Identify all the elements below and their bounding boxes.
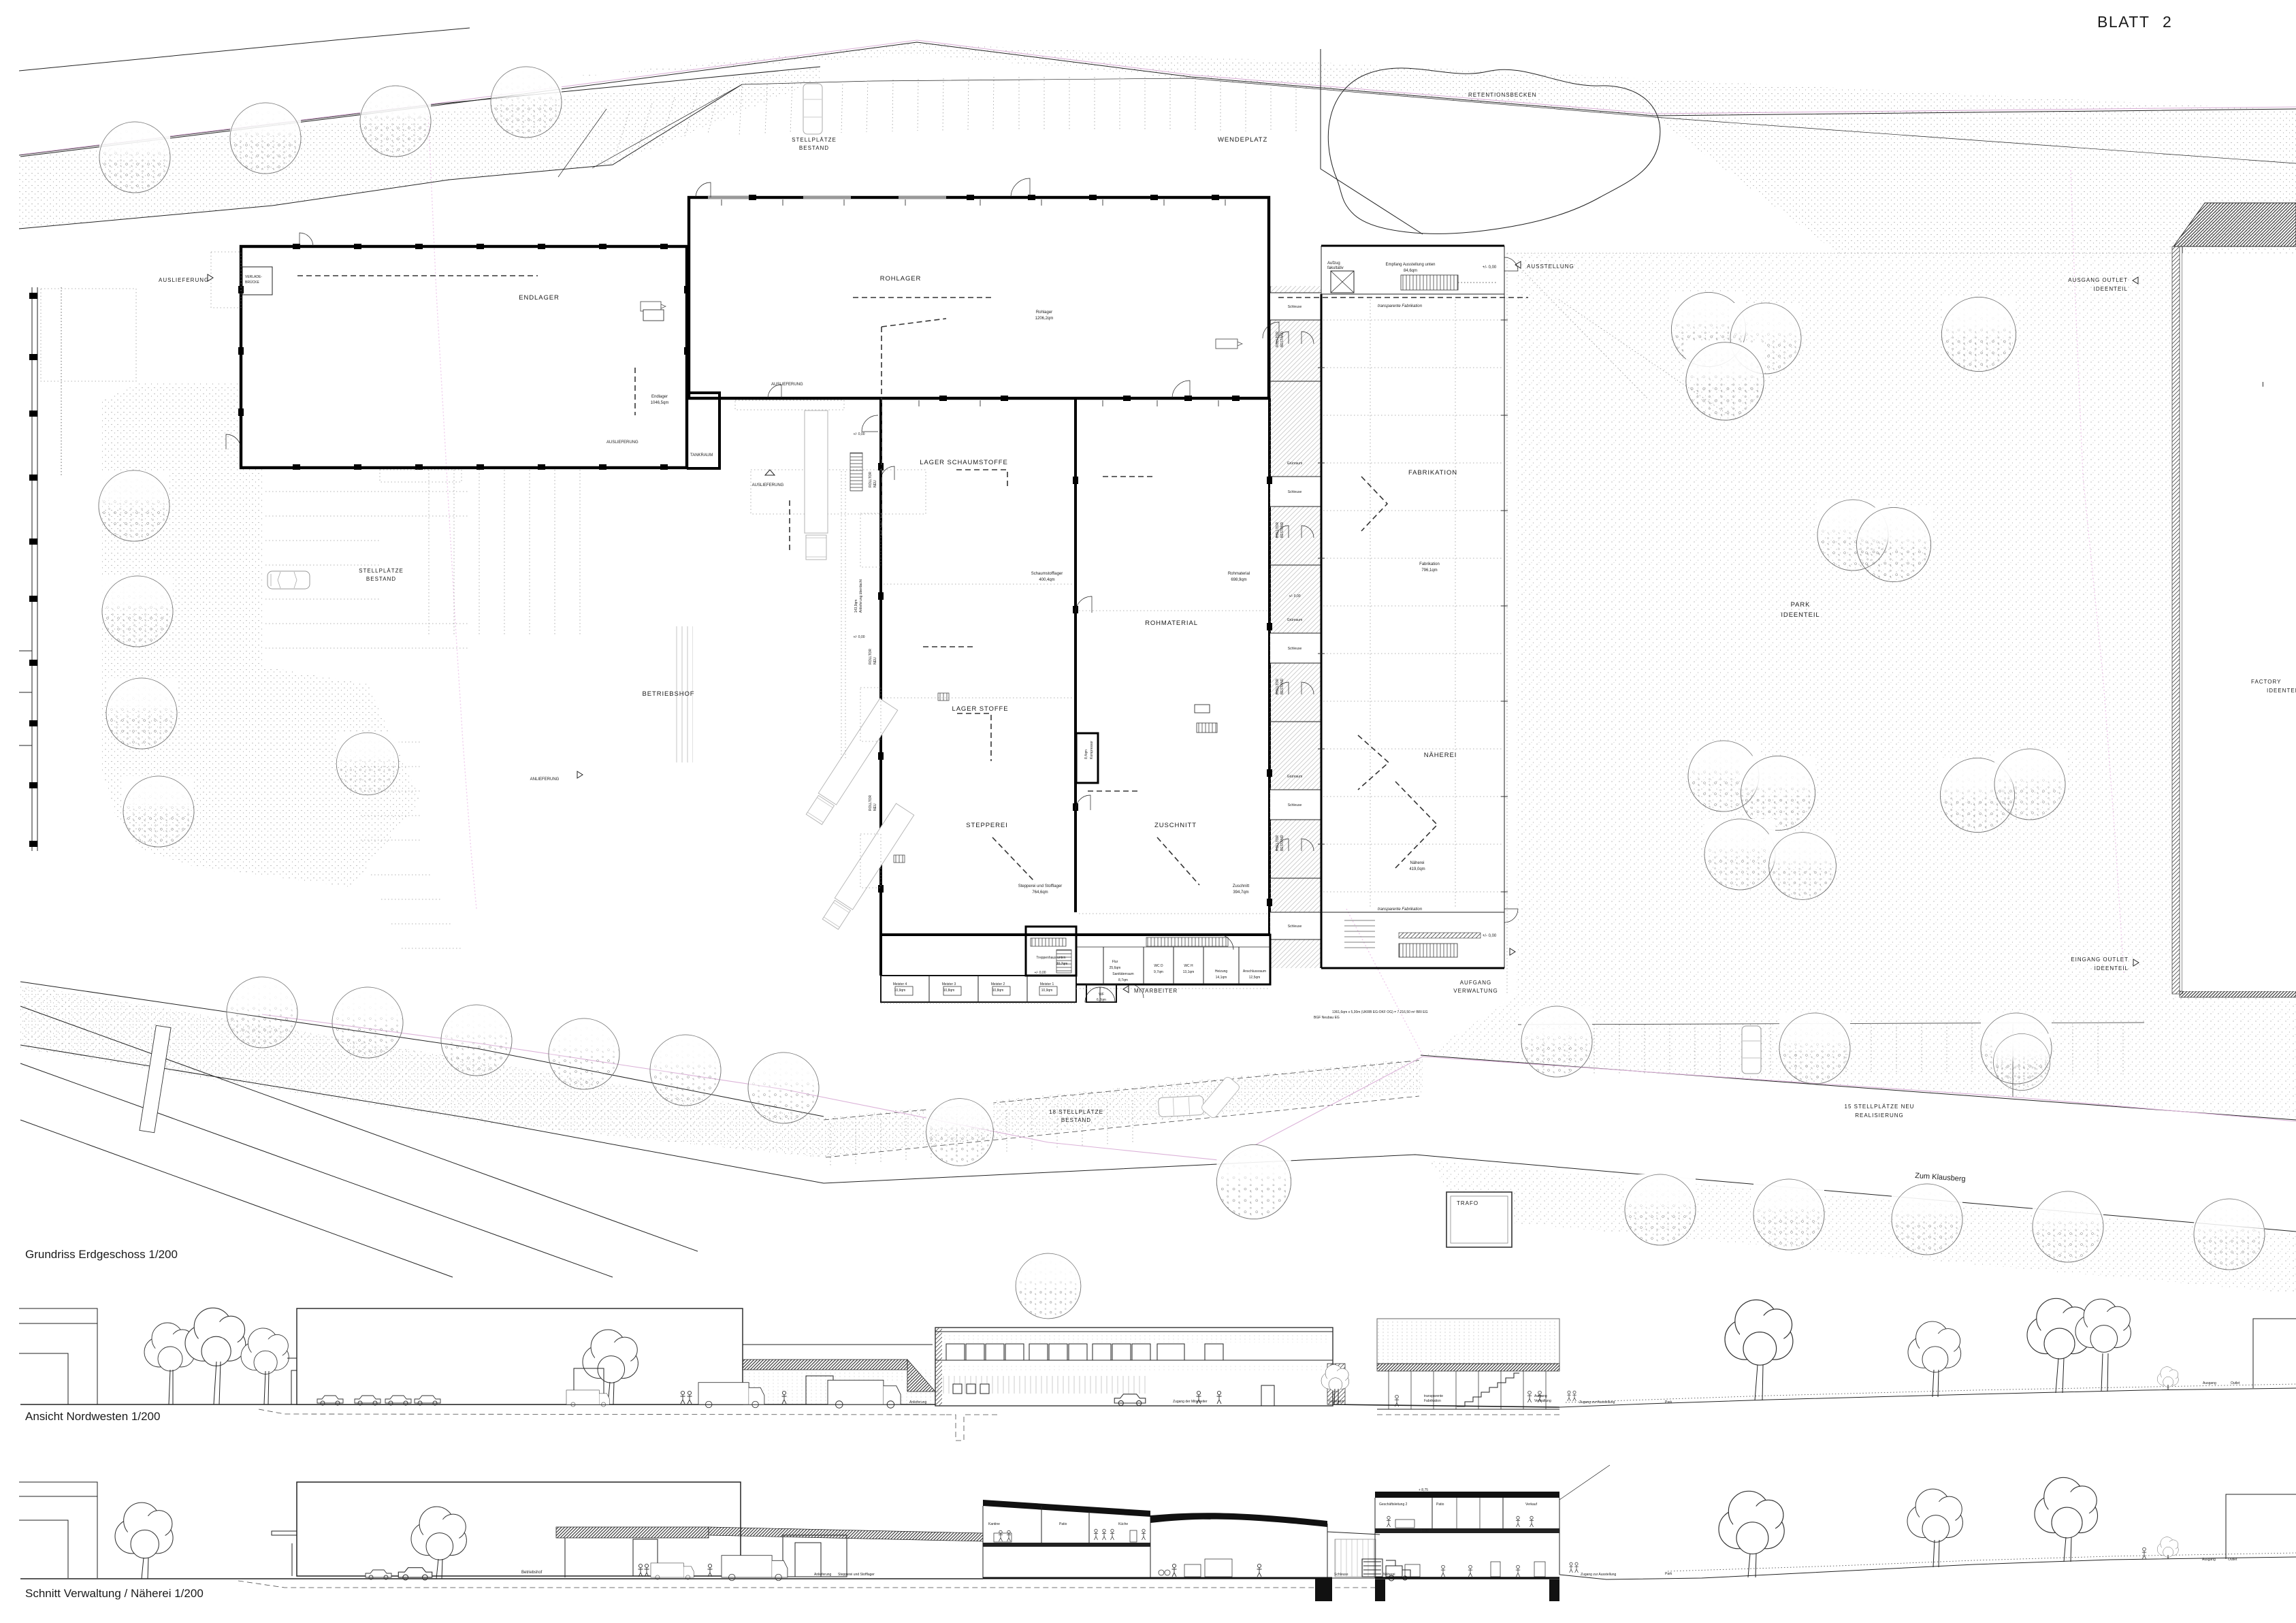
svg-text:STELLPLÄTZE: STELLPLÄTZE [359,568,404,574]
svg-text:BESTAND: BESTAND [1280,678,1284,694]
svg-text:10,9qm: 10,9qm [894,989,906,993]
svg-text:Meister 4: Meister 4 [893,982,907,986]
svg-text:1046,5qm: 1046,5qm [651,401,669,405]
svg-text:Schnitt Verwaltung / Nähere: Schnitt Verwaltung / Näherei 1/200 [25,1587,204,1600]
svg-text:394,7qm: 394,7qm [1233,890,1248,895]
svg-text:LAGER STOFFE: LAGER STOFFE [952,705,1009,713]
svg-text:Meister 2: Meister 2 [991,982,1005,986]
svg-text:Ausgang: Ausgang [2203,1381,2216,1385]
svg-text:BESTAND: BESTAND [1280,521,1284,538]
svg-text:IDEENTEIL: IDEENTEIL [2095,965,2129,971]
svg-text:698,9qm: 698,9qm [1231,578,1246,582]
svg-text:Schleuse: Schleuse [1288,925,1302,929]
svg-text:2: 2 [2163,13,2171,31]
svg-text:+/- 0,00: +/- 0,00 [1483,934,1497,938]
svg-text:Stepperei und Stofflager: Stepperei und Stofflager [838,1573,875,1577]
svg-text:Schleuse: Schleuse [1288,490,1302,494]
svg-text:ROLLTOR: ROLLTOR [869,794,873,811]
svg-text:IDEENTEIL: IDEENTEIL [2094,286,2128,292]
svg-text:AUFGANG: AUFGANG [1460,980,1492,986]
svg-text:ROLLTOR: ROLLTOR [1276,331,1280,347]
svg-text:Meister 3: Meister 3 [942,982,956,986]
svg-text:Verkauf: Verkauf [1525,1503,1538,1507]
svg-text:BGF Neubau EG: BGF Neubau EG [1314,1016,1340,1020]
svg-text:Ansicht Nordwesten 1/200: Ansicht Nordwesten 1/200 [25,1410,160,1423]
svg-text:BESTAND: BESTAND [799,145,829,151]
svg-text:fakultativ: fakultativ [1327,266,1344,270]
svg-text:STELLPLÄTZE: STELLPLÄTZE [792,137,837,143]
svg-text:WC D: WC D [1154,964,1163,968]
svg-text:ANLIEFERUNG: ANLIEFERUNG [530,777,560,782]
svg-text:STEPPEREI: STEPPEREI [966,822,1007,829]
svg-text:Zugang zur Ausstellung: Zugang zur Ausstellung [1579,1400,1615,1404]
svg-text:12,5qm: 12,5qm [1249,976,1261,980]
svg-text:Treppenhaus unten: Treppenhaus unten [1036,956,1065,960]
svg-text:BESTAND: BESTAND [1061,1117,1091,1123]
svg-text:ROLLTOR: ROLLTOR [869,471,873,487]
svg-text:+/- 0,00: +/- 0,00 [853,432,864,436]
svg-text:AUSLIEFERUNG: AUSLIEFERUNG [607,440,638,445]
svg-text:13,1qm: 13,1qm [1183,970,1195,974]
svg-text:Grünraum: Grünraum [1287,462,1303,466]
svg-text:AUSSTELLUNG: AUSSTELLUNG [1527,263,1574,270]
svg-text:Flur: Flur [1112,960,1118,964]
svg-text:Anschlussraum: Anschlussraum [1243,969,1266,974]
svg-text:Betriebshof: Betriebshof [521,1571,543,1575]
svg-text:Schaumstofflager: Schaumstofflager [1031,572,1063,576]
svg-text:Zugang zur Ausstellung: Zugang zur Ausstellung [1581,1573,1616,1577]
svg-text:TRAFO: TRAFO [1457,1200,1478,1206]
svg-text:796,1qm: 796,1qm [1421,568,1437,573]
svg-text:Fabrikation: Fabrikation [1424,1399,1441,1403]
svg-text:ROLLTOR: ROLLTOR [1276,835,1280,851]
svg-text:BESTAND: BESTAND [366,576,396,582]
svg-text:BETRIEBSHOF: BETRIEBSHOF [643,690,695,698]
svg-text:Grundriss Erdgeschoss 1/200: Grundriss Erdgeschoss 1/200 [25,1248,178,1261]
svg-text:400,4qm: 400,4qm [1039,578,1054,582]
svg-text:AUSLIEFERUNG: AUSLIEFERUNG [771,383,803,387]
svg-text:143,9qm: 143,9qm [854,600,858,613]
svg-text:Anlieferung überdacht: Anlieferung überdacht [859,579,863,613]
svg-text:BRÜCKE: BRÜCKE [245,280,260,285]
svg-text:transparente Fabrikation: transparente Fabrikation [1378,907,1423,912]
svg-text:Anlieferung: Anlieferung [814,1573,832,1577]
svg-text:Verwaltung: Verwaltung [1534,1399,1551,1403]
svg-text:I: I [2262,381,2264,389]
svg-text:Rohlager: Rohlager [1036,310,1052,315]
svg-text:transparente: transparente [1424,1394,1443,1398]
svg-text:9,7qm: 9,7qm [1154,970,1163,974]
svg-text:BLATT: BLATT [2097,13,2150,31]
svg-text:Park: Park [1665,1572,1672,1576]
svg-text:Endlager: Endlager [651,395,668,399]
svg-text:14,1qm: 14,1qm [1216,976,1227,980]
svg-text:Küche: Küche [1118,1522,1128,1526]
svg-text:NÄHEREI: NÄHEREI [1424,752,1457,759]
svg-text:18 STELLPLÄTZE: 18 STELLPLÄTZE [1049,1109,1103,1115]
svg-text:Schleuse: Schleuse [1288,803,1302,807]
svg-text:NEU: NEU [873,657,877,664]
svg-text:Grünraum: Grünraum [1287,775,1303,779]
svg-text:ROLLTOR: ROLLTOR [1276,521,1280,538]
svg-text:- 5.00: - 5.00 [1420,1529,1429,1533]
svg-text:+/- 0,00: +/- 0,00 [853,635,864,639]
svg-text:VERWALTUNG: VERWALTUNG [1453,988,1498,994]
svg-text:AUSGANG OUTLET: AUSGANG OUTLET [2068,277,2128,283]
svg-text:Patio: Patio [1059,1522,1067,1526]
svg-text:NEU: NEU [873,803,877,811]
svg-text:Sanitäterraum: Sanitäterraum [1112,972,1133,976]
svg-text:Näherei: Näherei [1410,861,1424,865]
svg-text:ROLLTOR: ROLLTOR [869,648,873,664]
svg-text:25,6qm: 25,6qm [1110,966,1121,970]
svg-text:Outlet: Outlet [2228,1558,2237,1562]
svg-text:Schleuse: Schleuse [1288,305,1302,309]
svg-text:Empfang Ausstellung unten: Empfang Ausstellung unten [1385,263,1435,267]
svg-text:Zuschnitt: Zuschnitt [1233,884,1250,888]
svg-text:Ausgang: Ausgang [2202,1558,2216,1562]
svg-text:Kantine: Kantine [988,1522,1000,1526]
svg-text:Heizung: Heizung [1215,969,1228,974]
svg-text:10,8qm: 10,8qm [992,989,1004,993]
svg-text:84,6qm: 84,6qm [1404,269,1417,273]
svg-text:Zugang der Mitarbeiter: Zugang der Mitarbeiter [1173,1400,1208,1404]
svg-text:20,7qm: 20,7qm [1056,962,1068,966]
svg-text:Kompressor: Kompressor [1090,741,1094,759]
svg-text:TANKRAUM: TANKRAUM [690,453,713,457]
svg-text:ROHLAGER: ROHLAGER [880,275,922,283]
svg-text:Anlieferung: Anlieferung [909,1400,927,1404]
svg-text:764,6qm: 764,6qm [1032,890,1048,895]
svg-text:IDEENTEIL: IDEENTEIL [2267,688,2296,694]
svg-text:EINGANG OUTLET: EINGANG OUTLET [2071,957,2129,963]
svg-text:Rohmaterial: Rohmaterial [1228,572,1250,576]
svg-text:8,7qm: 8,7qm [1118,978,1128,982]
svg-text:ZUSCHNITT: ZUSCHNITT [1154,822,1197,829]
svg-text:transparente Fabrikation: transparente Fabrikation [1378,304,1423,308]
svg-text:WENDEPLATZ: WENDEPLATZ [1218,136,1267,144]
svg-text:Fabrikation: Fabrikation [1419,562,1440,566]
svg-text:419,0qm: 419,0qm [1409,867,1425,871]
svg-text:+ 8,75: + 8,75 [1419,1488,1428,1492]
svg-text:1361,6qm x 5,30m (UKRB EG-OKF: 1361,6qm x 5,30m (UKRB EG-OKF OG) = 7.21… [1332,1010,1428,1014]
svg-text:ROLLTOR: ROLLTOR [1276,678,1280,694]
svg-text:IDEENTEIL: IDEENTEIL [1781,611,1820,619]
svg-text:Patio: Patio [1436,1503,1444,1507]
svg-text:ENDLAGER: ENDLAGER [519,294,559,302]
svg-text:10,8qm: 10,8qm [943,989,955,993]
svg-text:PARK: PARK [1791,601,1811,609]
svg-text:REALISIERUNG: REALISIERUNG [1855,1112,1904,1119]
svg-text:BESTAND: BESTAND [1280,835,1284,851]
svg-text:VERLADE-: VERLADE- [245,275,262,279]
svg-text:6,2qm: 6,2qm [1097,998,1106,1002]
svg-text:NEU: NEU [873,480,877,487]
svg-text:1206,2qm: 1206,2qm [1035,317,1054,321]
svg-text:Schleuse: Schleuse [1288,647,1302,651]
svg-text:Outlet: Outlet [2231,1381,2240,1385]
svg-text:Grünraum: Grünraum [1287,618,1303,622]
svg-text:WF: WF [1099,993,1104,997]
svg-text:FABRIKATION: FABRIKATION [1408,469,1457,477]
svg-text:15 STELLPLÄTZE NEU: 15 STELLPLÄTZE NEU [1845,1104,1915,1110]
svg-text:AUSLIEFERUNG: AUSLIEFERUNG [159,277,209,283]
svg-text:+/- 0,00: +/- 0,00 [1289,594,1300,598]
svg-text:BESTAND: BESTAND [1280,331,1284,347]
svg-text:WC H: WC H [1184,964,1193,968]
svg-text:Grünraum: Grünraum [1329,1400,1344,1404]
svg-text:10,9qm: 10,9qm [1041,989,1053,993]
svg-text:Meister 1: Meister 1 [1040,982,1054,986]
svg-text:Geschäftsleitung 2: Geschäftsleitung 2 [1379,1503,1408,1507]
svg-text:+/- 0,00: +/- 0,00 [1483,266,1497,270]
svg-text:LAGER SCHAUMSTOFFE: LAGER SCHAUMSTOFFE [920,459,1008,466]
svg-text:Stepperei und Stofflager: Stepperei und Stofflager [1018,884,1063,888]
svg-text:FACTORY: FACTORY [2251,679,2282,685]
svg-text:MITARBEITER: MITARBEITER [1134,988,1178,994]
svg-text:Aufgang: Aufgang [1534,1394,1547,1398]
svg-text:AUSLIEFERUNG: AUSLIEFERUNG [752,483,784,487]
svg-text:Park: Park [1665,1400,1672,1404]
svg-text:RETENTIONSBECKEN: RETENTIONSBECKEN [1468,92,1536,98]
svg-text:Aufzug: Aufzug [1327,261,1340,266]
svg-text:ROHMATERIAL: ROHMATERIAL [1145,620,1198,627]
svg-text:+/- 0,00: +/- 0,00 [1034,971,1046,975]
svg-text:8,4qm: 8,4qm [1084,750,1088,759]
